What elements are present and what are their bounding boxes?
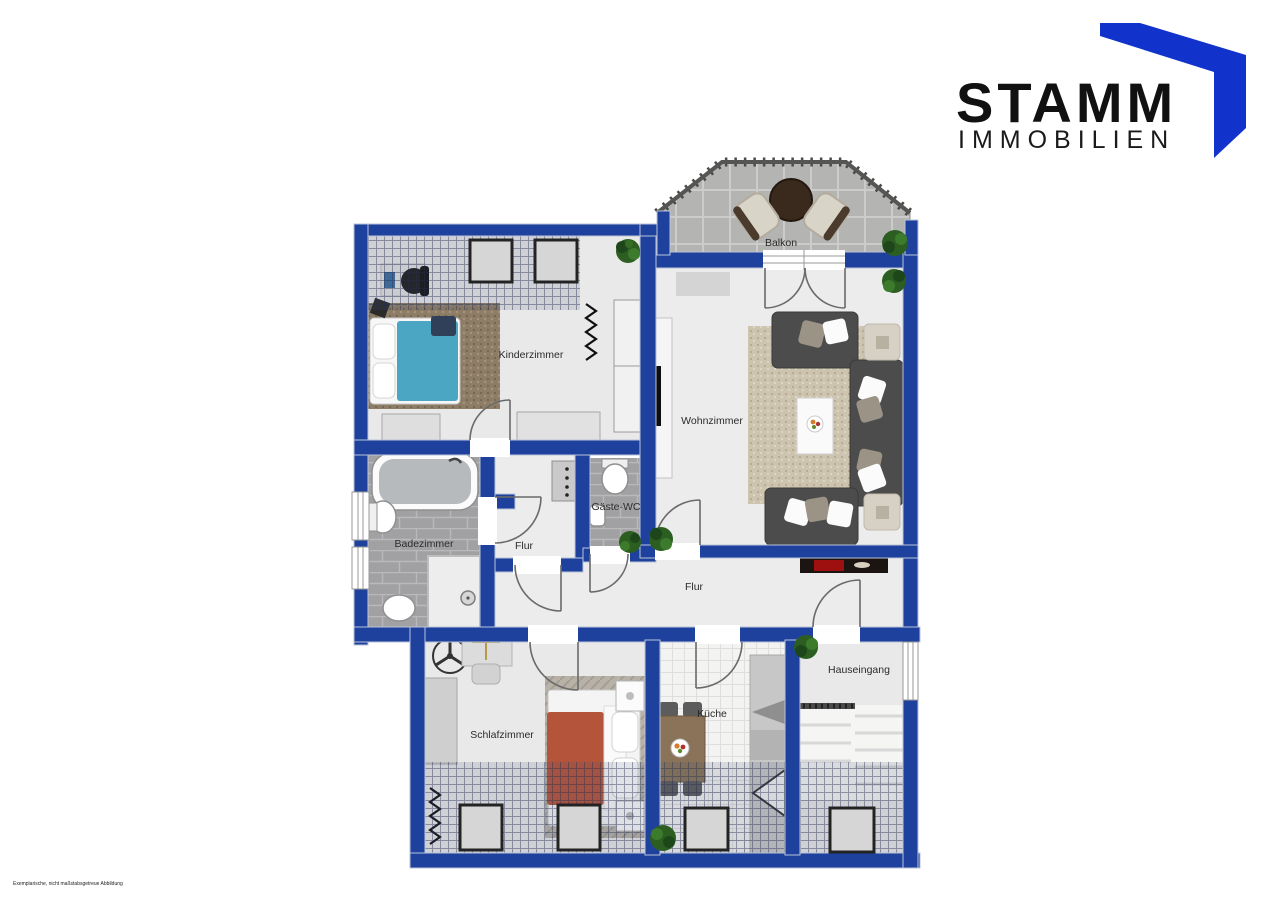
- plant-icon: [649, 527, 673, 551]
- wc-toilet: [602, 464, 628, 494]
- kids-cushion: [431, 316, 456, 336]
- sink-icon: [383, 595, 415, 621]
- bedroom-wardrobe: [425, 678, 457, 764]
- disclaimer-text: Exemplarische, nicht maßstabsgetreue Abb…: [13, 881, 123, 887]
- label-kueche: Küche: [697, 708, 727, 720]
- floorplan-canvas: Balkon Kinderzimmer Wohnzimmer Badezimme…: [0, 0, 1279, 904]
- label-flur-unten: Flur: [685, 581, 704, 593]
- label-gaeste-wc: Gäste-WC: [591, 501, 640, 513]
- bed-pillow: [612, 712, 638, 752]
- table-fruit-bowl: [671, 739, 689, 757]
- flur-bottom-furniture: [800, 558, 888, 573]
- brand-logo: STAMM IMMOBILIEN: [956, 23, 1246, 158]
- kids-pillow: [373, 324, 395, 359]
- plant-icon: [650, 825, 676, 851]
- plant-icon: [616, 239, 640, 263]
- skylight: [830, 808, 874, 852]
- skylight: [460, 805, 502, 850]
- kids-sideboard: [517, 412, 600, 442]
- plant-icon: [882, 269, 906, 293]
- sofa-pillow: [826, 500, 854, 528]
- label-badezimmer: Badezimmer: [395, 538, 454, 550]
- plant-icon: [882, 230, 908, 256]
- sofa-pillow: [822, 318, 849, 345]
- plant-icon: [619, 531, 641, 553]
- hall-sideboard-bowl: [854, 562, 870, 568]
- label-flur-oben: Flur: [515, 540, 534, 552]
- label-hauseingang: Hauseingang: [828, 664, 890, 676]
- skylight: [685, 808, 728, 850]
- skylight: [535, 240, 577, 282]
- living-sideboard: [676, 272, 730, 296]
- brand-name: STAMM: [956, 71, 1177, 134]
- plant-icon: [794, 635, 818, 659]
- label-kinderzimmer: Kinderzimmer: [499, 349, 564, 361]
- skylight: [470, 240, 512, 282]
- kids-dresser: [382, 414, 440, 442]
- hall-sideboard-red: [814, 560, 844, 571]
- kids-pillow: [373, 363, 395, 398]
- label-wohnzimmer: Wohnzimmer: [681, 415, 743, 427]
- fruit-bowl: [807, 416, 823, 432]
- label-balkon: Balkon: [765, 237, 797, 249]
- label-schlafzimmer: Schlafzimmer: [470, 729, 534, 741]
- dining-chair: [659, 702, 678, 717]
- bathtub-water: [379, 459, 471, 504]
- brand-subtitle: IMMOBILIEN: [958, 126, 1175, 154]
- floorplan-page: Balkon Kinderzimmer Wohnzimmer Badezimme…: [0, 0, 1279, 904]
- bedroom-chair: [472, 664, 500, 684]
- skylight: [558, 805, 600, 850]
- sofa-pillow: [804, 496, 831, 523]
